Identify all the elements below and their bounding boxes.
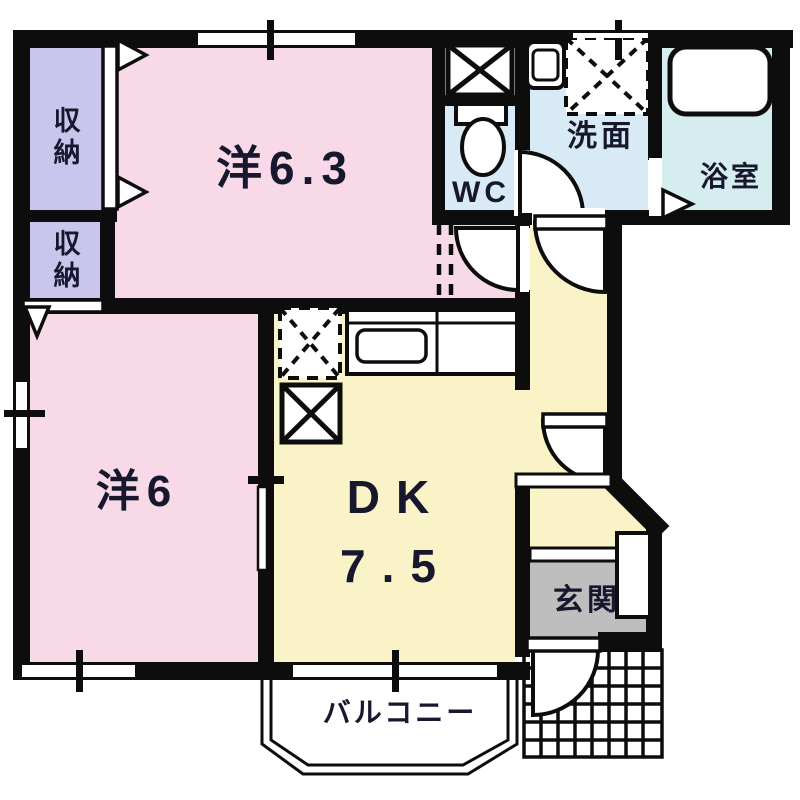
floor-plan: 洋6.3 洋6 DK 7.5 WC 洗面 浴室 玄関 バルコニー 収納 収納	[0, 0, 800, 800]
room-label-wc: WC	[452, 178, 510, 208]
room-label-washroom: 洗面	[567, 122, 635, 152]
front-door-leaf	[527, 638, 600, 651]
washer-space-icon	[566, 38, 648, 114]
washroom-door-leaf	[535, 216, 607, 229]
hall-door-leaf	[543, 414, 607, 427]
entrance-step-threshold	[530, 548, 618, 561]
window-tick	[248, 476, 284, 484]
window-tick	[267, 20, 274, 60]
room-label-entrance: 玄関	[553, 586, 621, 616]
room-label-dk-size: 7.5	[340, 543, 452, 589]
bathroom-door-opening	[649, 158, 662, 216]
wc-storage-box	[448, 45, 512, 95]
wall-segment	[607, 222, 622, 482]
bathtub-icon	[670, 47, 770, 114]
window-tick	[392, 650, 399, 692]
kitchen-counter	[347, 310, 517, 374]
room-label-western-63: 洋6.3	[216, 145, 354, 191]
sliding-door-west6-dk	[258, 487, 267, 570]
refrigerator-space-icon	[282, 385, 340, 442]
hall-step-threshold	[516, 474, 611, 487]
wall-segment	[648, 30, 662, 160]
sink-icon	[527, 42, 564, 88]
room-label-dk: DK	[347, 474, 445, 520]
room-label-balcony: バルコニー	[323, 699, 477, 727]
window-tick	[615, 20, 622, 60]
window-top-washroom	[573, 33, 648, 38]
wall-segment	[515, 478, 530, 657]
kitchen-sink-icon	[357, 330, 426, 362]
room-label-western-6: 洋6	[96, 470, 178, 514]
shoe-cabinet	[617, 533, 650, 617]
hallway-opening	[513, 390, 530, 478]
room-label-closet-upper: 収納	[51, 106, 78, 170]
closet-upper-door-track	[103, 46, 117, 209]
wall-segment	[598, 632, 662, 652]
wall-segment	[432, 45, 445, 210]
room-label-bathroom: 浴室	[700, 163, 762, 191]
wall-segment	[605, 210, 790, 225]
wall-segment	[772, 30, 790, 225]
wall-segment	[13, 210, 117, 222]
window-top-west63	[198, 33, 355, 45]
floor-plan-drawing	[0, 0, 800, 800]
room-label-closet-lower: 収納	[51, 229, 78, 293]
wall-segment	[13, 30, 30, 680]
window-tick	[76, 650, 83, 692]
wall-segment	[100, 222, 115, 300]
appliance-space-dashed-icon	[280, 308, 340, 378]
window-tick	[4, 410, 45, 417]
